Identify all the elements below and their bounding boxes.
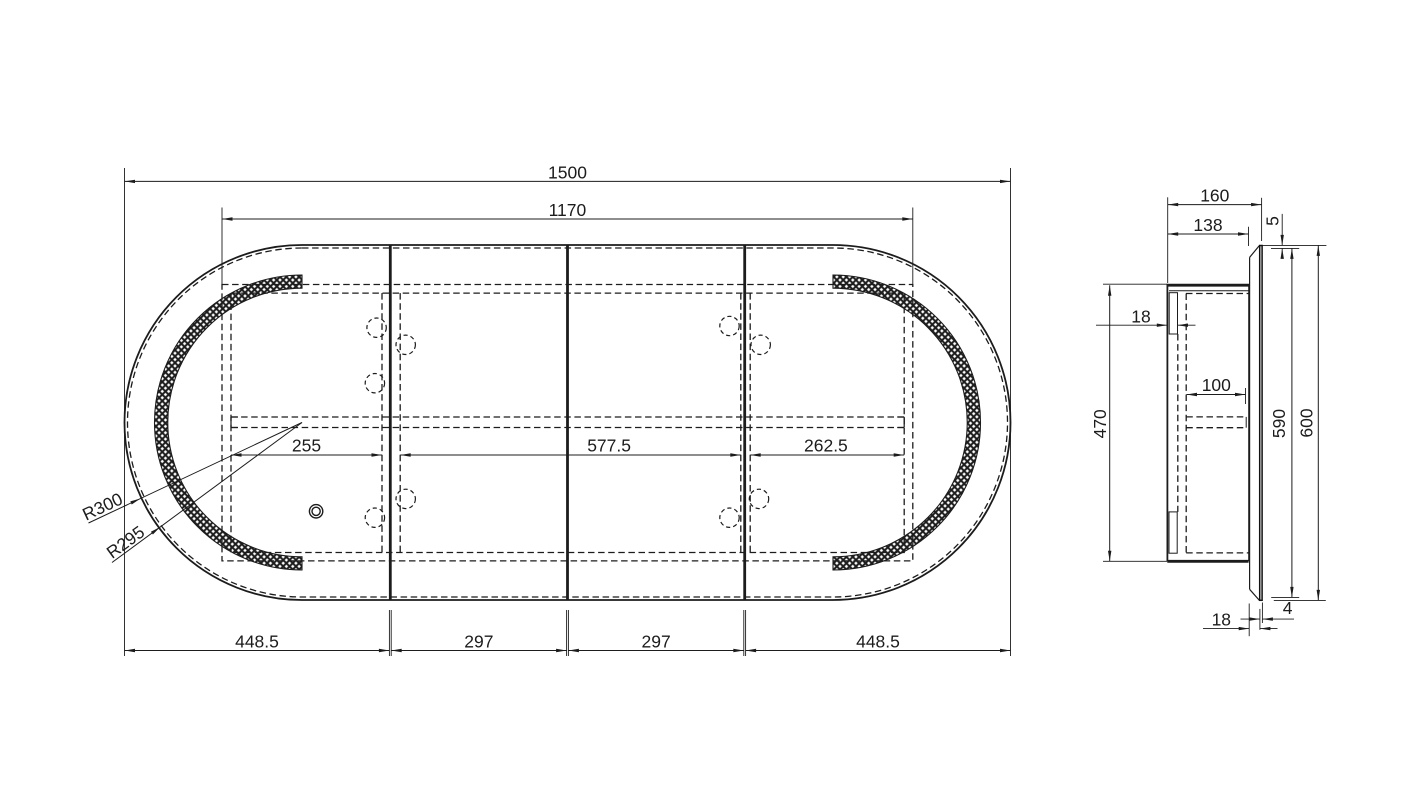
svg-text:100: 100 (1202, 375, 1231, 395)
svg-text:5: 5 (1262, 216, 1282, 226)
svg-text:600: 600 (1297, 408, 1317, 437)
svg-text:18: 18 (1131, 307, 1150, 327)
svg-text:448.5: 448.5 (856, 631, 900, 651)
svg-text:262.5: 262.5 (804, 436, 848, 456)
svg-text:297: 297 (641, 631, 670, 651)
svg-text:255: 255 (292, 436, 321, 456)
svg-text:18: 18 (1212, 610, 1231, 630)
svg-text:138: 138 (1193, 215, 1222, 235)
svg-text:1170: 1170 (549, 200, 587, 220)
svg-text:577.5: 577.5 (587, 436, 631, 456)
svg-text:160: 160 (1200, 185, 1229, 205)
svg-text:297: 297 (464, 631, 493, 651)
svg-text:1500: 1500 (548, 162, 587, 182)
svg-text:470: 470 (1090, 409, 1110, 438)
svg-text:4: 4 (1283, 598, 1293, 618)
svg-text:590: 590 (1269, 409, 1289, 438)
svg-text:448.5: 448.5 (235, 631, 279, 651)
